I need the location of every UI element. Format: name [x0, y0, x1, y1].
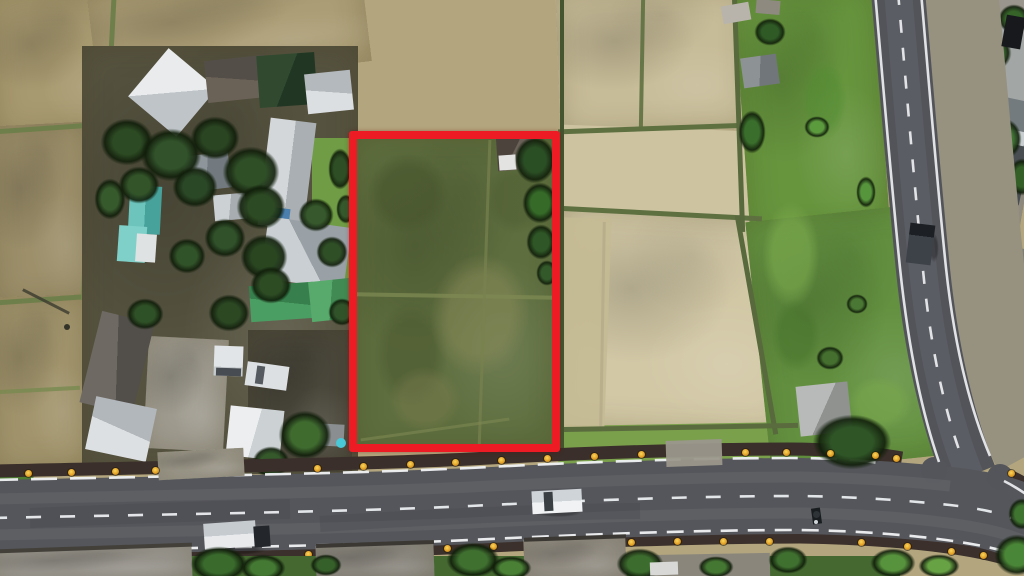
tree-canopy — [754, 18, 786, 46]
tree-canopy — [94, 178, 126, 220]
road-stud — [360, 463, 367, 470]
utility-pole — [64, 324, 70, 330]
main-road-wheel-track — [0, 477, 950, 499]
hedge-line — [560, 132, 564, 454]
tree-canopy — [250, 266, 292, 304]
road-stud — [68, 469, 75, 476]
grass-patch — [766, 290, 826, 380]
hedge-line — [560, 0, 564, 136]
road-stud — [407, 461, 414, 468]
vehicle-car-dark — [906, 223, 936, 266]
tree-canopy — [172, 166, 218, 208]
road-stud — [872, 452, 879, 459]
bush-bright — [918, 554, 960, 576]
palm-canopy — [310, 554, 342, 576]
tree-canopy — [804, 116, 830, 138]
rice-field — [0, 294, 91, 469]
main-road-wheel-track — [0, 513, 1024, 545]
road-stud — [766, 538, 773, 545]
road-stud — [948, 548, 955, 555]
concrete-pad — [523, 536, 626, 576]
white-panels — [994, 405, 1016, 435]
motorbike-rider — [813, 511, 820, 518]
palm-canopy — [190, 546, 248, 576]
cart — [755, 0, 780, 15]
road-stud — [783, 449, 790, 456]
tree-canopy — [126, 298, 164, 330]
road-stud — [112, 468, 119, 475]
tree-canopy — [942, 328, 974, 358]
palm-canopy — [986, 118, 1022, 160]
sign-board — [650, 562, 678, 576]
road-stud — [25, 470, 32, 477]
tree-canopy — [846, 294, 868, 314]
vehicle-truck-cab — [253, 525, 270, 547]
road-stud — [1008, 470, 1015, 477]
road-stud — [314, 465, 321, 472]
road-stud — [544, 455, 551, 462]
driveway-entrance — [157, 448, 244, 480]
road-stud — [452, 459, 459, 466]
palm-canopy — [698, 556, 734, 576]
tree-canopy — [816, 346, 844, 370]
vehicle-truck-box — [203, 520, 257, 550]
tree-canopy — [208, 294, 250, 332]
roof-white — [304, 70, 354, 115]
roof-white-small — [135, 233, 157, 262]
blue-tarp-light — [980, 210, 1016, 242]
land-plot-boundary — [349, 131, 560, 452]
palm-canopy — [994, 534, 1024, 576]
road-stud — [591, 453, 598, 460]
road-stud — [628, 539, 635, 546]
motorbike-headlight — [814, 520, 818, 524]
palm-canopy — [252, 446, 290, 478]
vehicle-car-white — [531, 489, 582, 515]
tree-canopy — [236, 184, 286, 230]
tree-canopy — [950, 298, 974, 320]
palm-canopy — [490, 556, 532, 576]
hut-roof-small — [740, 54, 780, 89]
tree-canopy — [856, 176, 876, 208]
road-stud — [980, 552, 987, 559]
road-stud — [498, 457, 505, 464]
market-goods — [1000, 294, 1010, 304]
bush-bright — [870, 548, 916, 576]
asphalt-patch — [320, 511, 640, 524]
junction-corner — [987, 464, 1013, 490]
main-road-center-line — [0, 496, 1024, 528]
road-stud — [904, 543, 911, 550]
palm-canopy — [738, 110, 766, 154]
junction-corner — [921, 457, 947, 483]
road-stud — [152, 467, 159, 474]
tree-canopy — [316, 236, 348, 268]
aerial-photo — [0, 0, 1024, 576]
palm-canopy — [1008, 498, 1024, 530]
vehicle-windshield — [544, 492, 554, 511]
road-stud — [858, 539, 865, 546]
palm-canopy — [240, 554, 286, 576]
main-road-asphalt — [0, 496, 1024, 528]
person-blue-umbrella — [336, 438, 346, 448]
vehicle-windshield — [216, 368, 241, 377]
road-stud — [720, 538, 727, 545]
road-stud — [827, 450, 834, 457]
palm-canopy — [768, 546, 808, 574]
road-stud — [742, 449, 749, 456]
road-stud — [674, 538, 681, 545]
road-stud — [893, 455, 900, 462]
asphalt-patch — [30, 509, 290, 518]
market-goods — [986, 298, 998, 310]
tree-canopy — [298, 198, 334, 232]
tree-canopy — [168, 238, 206, 274]
driveway-entrance — [666, 439, 723, 467]
tree-canopy — [812, 414, 892, 470]
road-stud — [638, 451, 645, 458]
